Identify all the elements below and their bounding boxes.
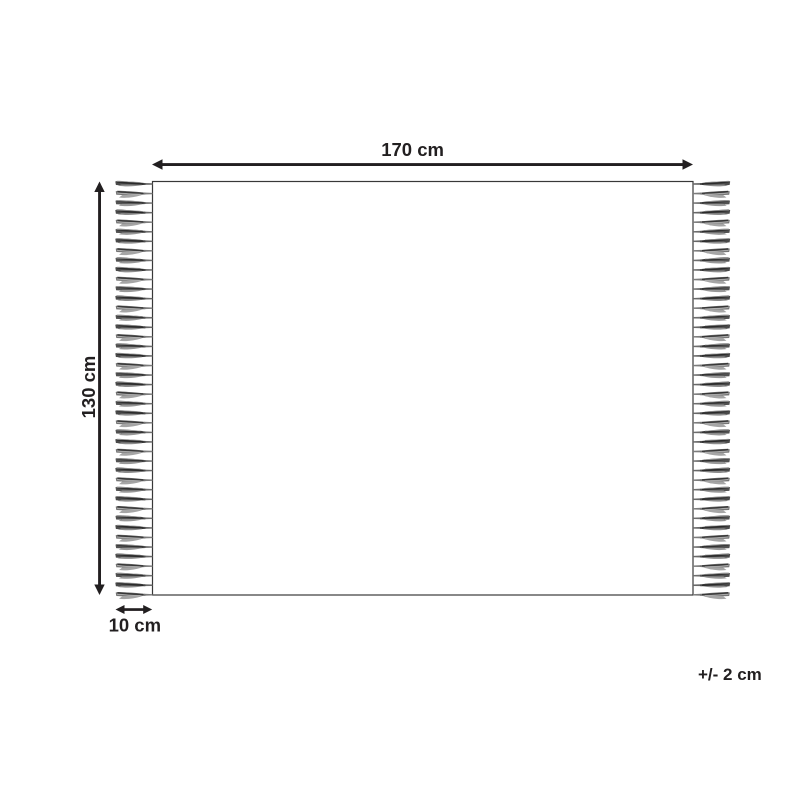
svg-text:+/- 2 cm: +/- 2 cm bbox=[698, 665, 762, 684]
svg-text:170 cm: 170 cm bbox=[381, 139, 444, 160]
svg-text:130 cm: 130 cm bbox=[78, 356, 99, 419]
svg-text:10 cm: 10 cm bbox=[109, 615, 161, 636]
